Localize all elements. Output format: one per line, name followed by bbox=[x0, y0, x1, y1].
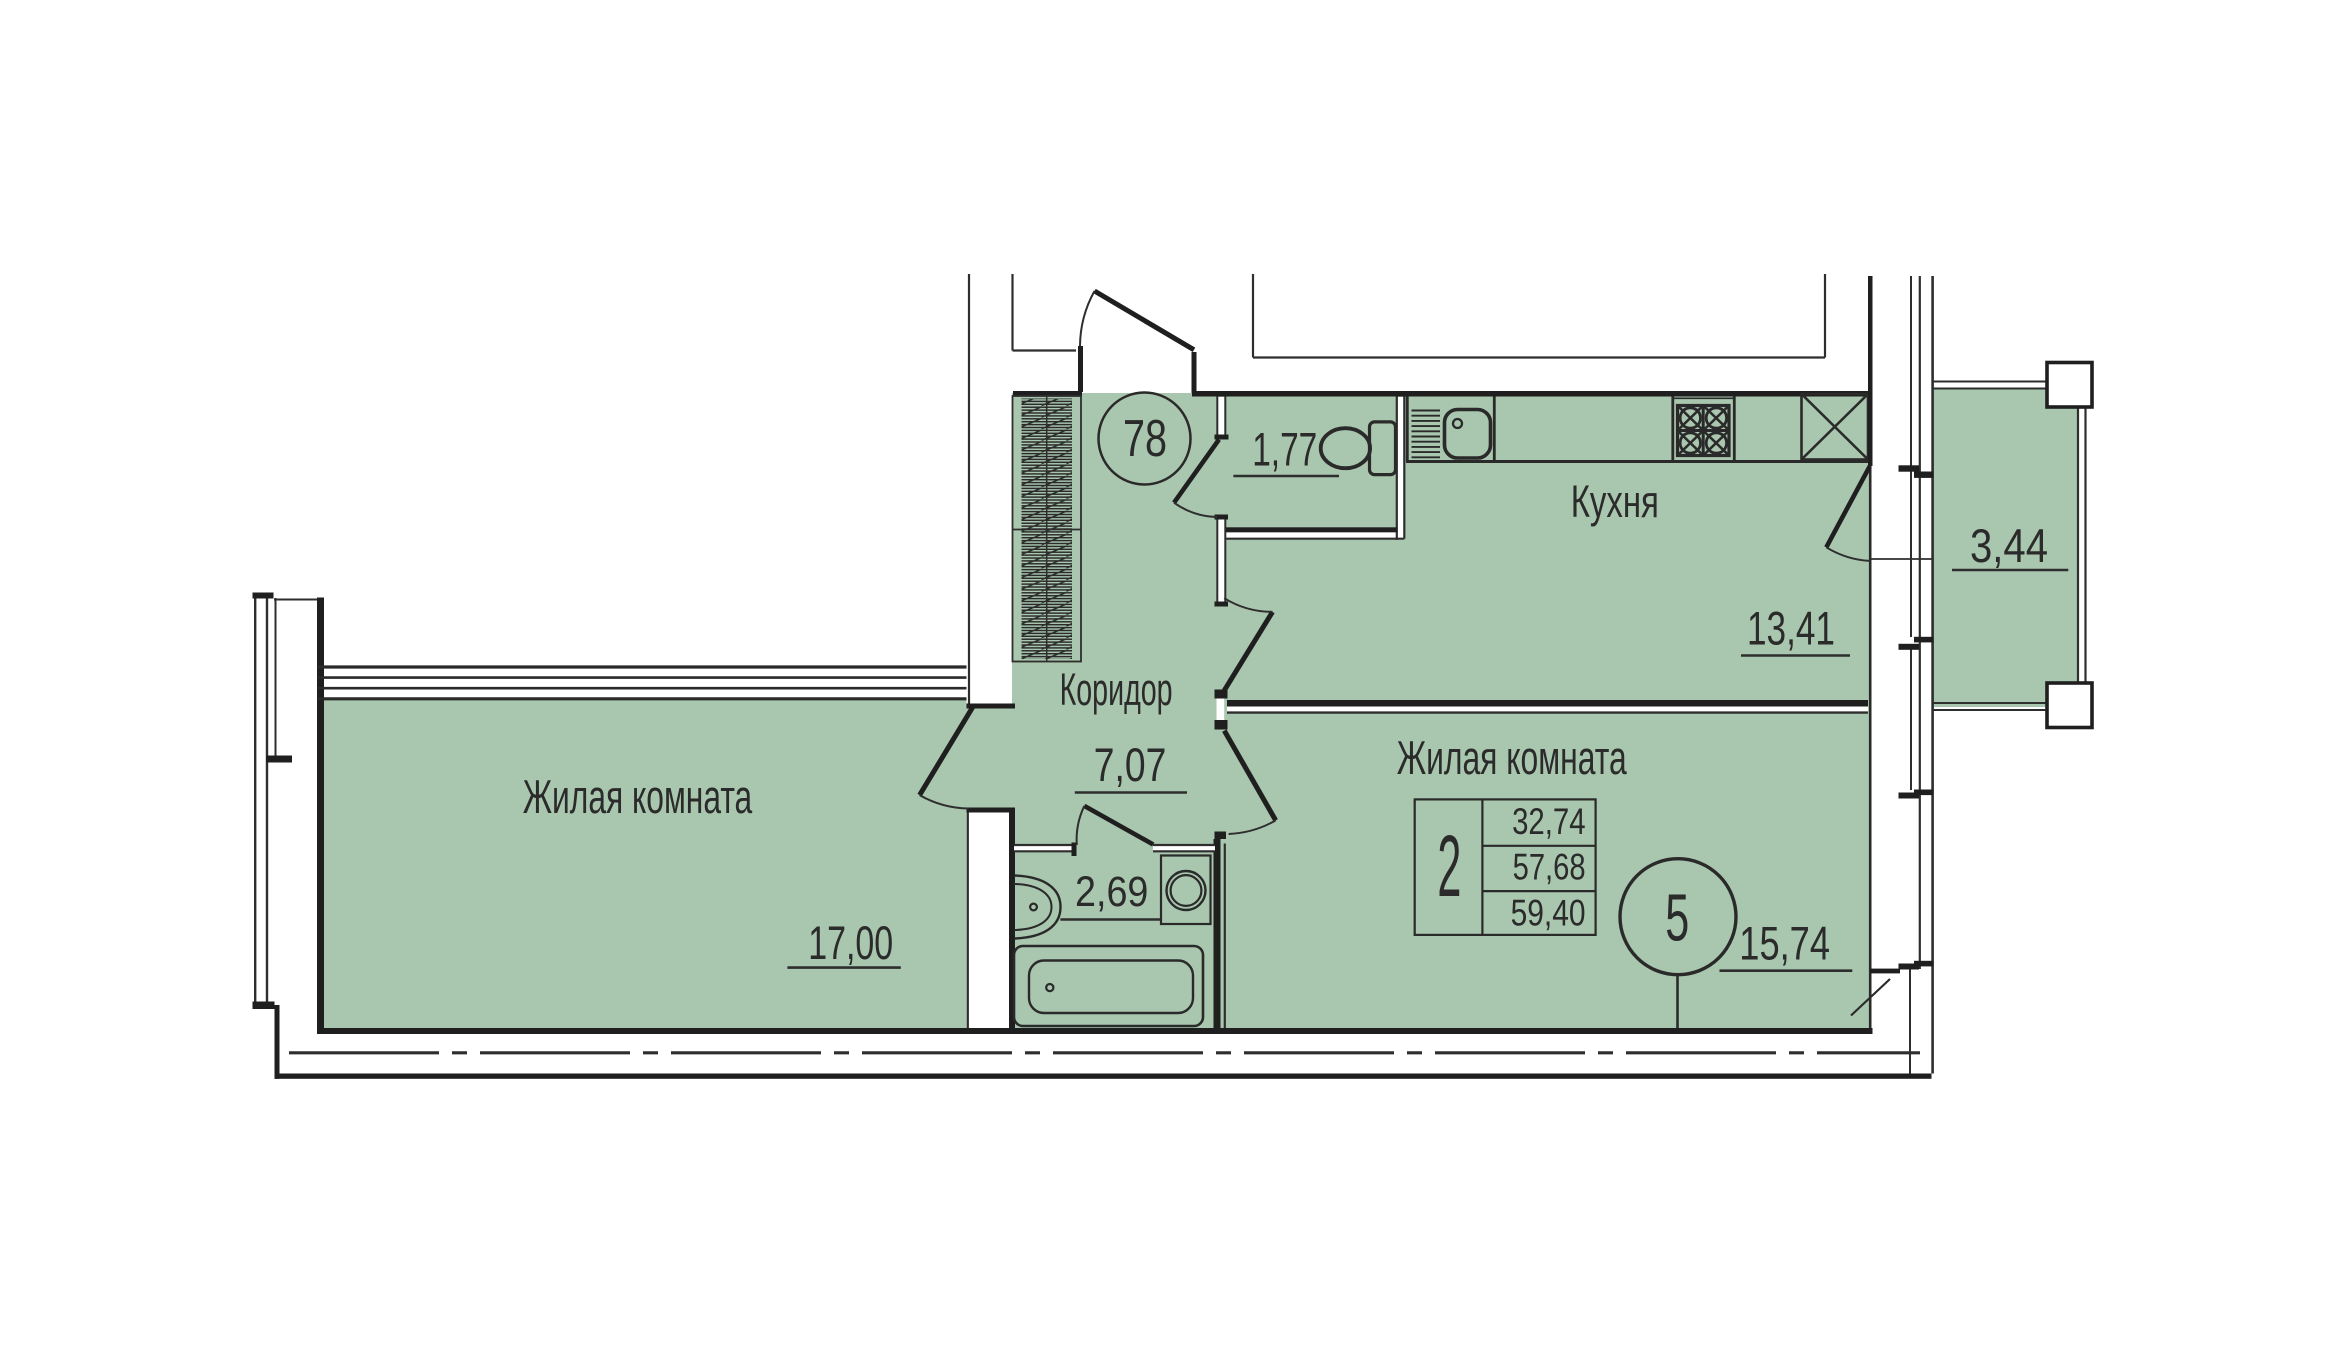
svg-text:32,74: 32,74 bbox=[1512, 801, 1586, 842]
svg-text:15,74: 15,74 bbox=[1739, 917, 1830, 970]
svg-text:Кухня: Кухня bbox=[1571, 476, 1659, 527]
svg-text:59,40: 59,40 bbox=[1511, 893, 1586, 934]
svg-text:Жилая комната: Жилая комната bbox=[1397, 731, 1628, 784]
svg-text:2,69: 2,69 bbox=[1075, 868, 1148, 916]
svg-text:13,41: 13,41 bbox=[1747, 602, 1835, 655]
svg-text:Жилая комната: Жилая комната bbox=[523, 770, 753, 823]
svg-text:57,68: 57,68 bbox=[1513, 847, 1586, 888]
svg-text:3,44: 3,44 bbox=[1970, 519, 2048, 572]
svg-text:78: 78 bbox=[1123, 409, 1167, 467]
svg-text:5: 5 bbox=[1665, 881, 1689, 956]
svg-text:7,07: 7,07 bbox=[1094, 738, 1167, 791]
svg-text:2: 2 bbox=[1437, 818, 1461, 915]
svg-text:Коридор: Коридор bbox=[1060, 664, 1173, 715]
svg-text:17,00: 17,00 bbox=[808, 916, 893, 969]
svg-text:1,77: 1,77 bbox=[1252, 423, 1317, 476]
